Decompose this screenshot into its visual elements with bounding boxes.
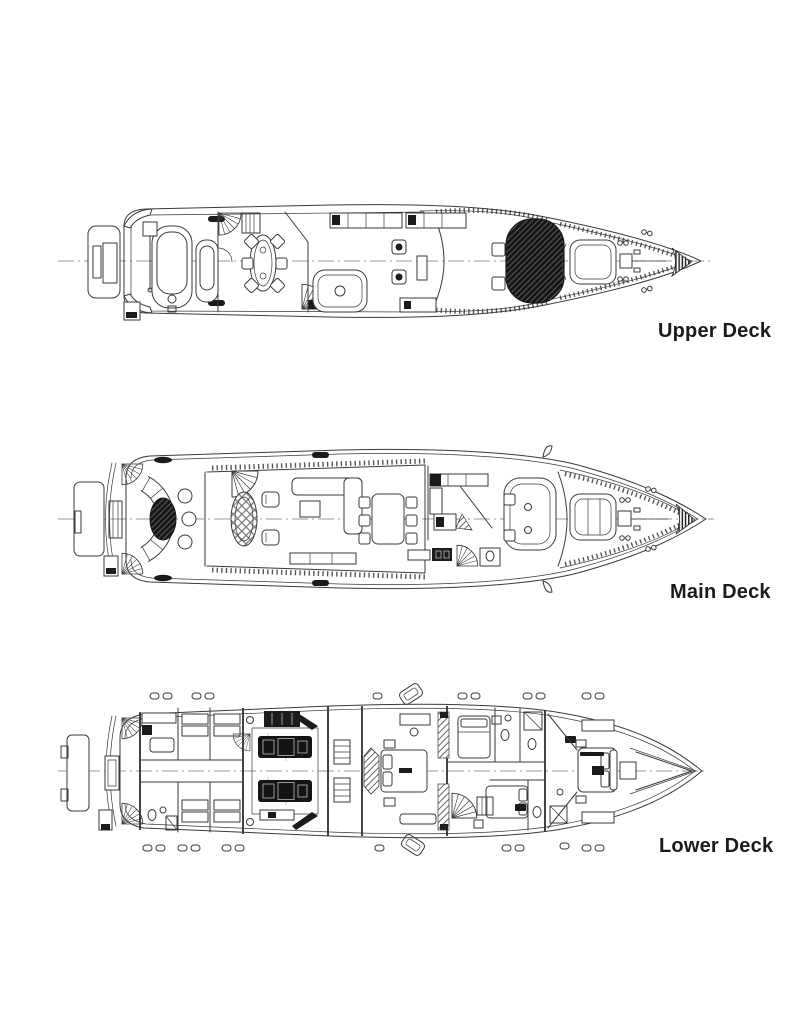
main-aft-deck-table xyxy=(150,489,196,549)
main-day-head xyxy=(408,545,500,566)
lower-swim-platform xyxy=(61,716,119,830)
upper-dining-table xyxy=(242,234,287,294)
upper-tender-boat xyxy=(152,226,192,312)
main-windlass xyxy=(618,508,668,530)
bollard-icon xyxy=(645,545,656,552)
upper-deck-label: Upper Deck xyxy=(658,320,771,343)
yacht-deck-plans-page: { "page": { "width": 800, "height": 1036… xyxy=(0,0,800,1036)
lower-engine-room xyxy=(247,711,319,830)
port-engine xyxy=(258,733,312,761)
lower-guest-cabins xyxy=(447,708,576,830)
main-stern-stair-port xyxy=(122,464,143,485)
main-deck-label: Main Deck xyxy=(670,581,771,604)
deck-plan-canvas xyxy=(0,0,800,1036)
yacht-plans-svg xyxy=(0,0,800,1036)
upper-deck-plan xyxy=(58,205,710,320)
main-rattan-table xyxy=(231,492,257,546)
starboard-engine xyxy=(258,777,312,805)
main-bow-sunpad xyxy=(570,494,616,540)
bollard-icon xyxy=(641,286,652,293)
lower-deck-label: Lower Deck xyxy=(659,835,773,858)
lower-portholes-bottom xyxy=(143,833,604,857)
cleat-icon xyxy=(620,536,631,541)
upper-aft-platform xyxy=(88,226,120,298)
lower-crew-quarters xyxy=(140,708,250,832)
upper-windlass xyxy=(620,250,666,272)
main-deck-plan xyxy=(58,446,714,593)
main-bow-hatch xyxy=(676,504,695,534)
upper-jet-tender xyxy=(196,240,218,302)
upper-brow-hatched xyxy=(506,219,564,303)
cleat-icon xyxy=(620,498,631,503)
main-pilothouse xyxy=(504,478,556,550)
upper-helm-chairs xyxy=(392,240,427,284)
lower-portholes-top xyxy=(150,682,604,706)
main-dining-table xyxy=(359,494,417,544)
main-salon-sofa xyxy=(290,478,362,564)
upper-skylights xyxy=(492,243,505,290)
main-stern-stair-stbd xyxy=(122,553,143,574)
upper-bow-sunpad xyxy=(562,240,616,284)
lower-deck-plan xyxy=(58,682,708,857)
bollard-icon xyxy=(641,229,652,236)
upper-stairs-aft xyxy=(219,213,260,235)
main-armchairs xyxy=(262,492,279,545)
bollard-icon xyxy=(645,486,656,493)
main-galley xyxy=(428,466,492,540)
upper-skylounge-sofa xyxy=(313,270,367,312)
